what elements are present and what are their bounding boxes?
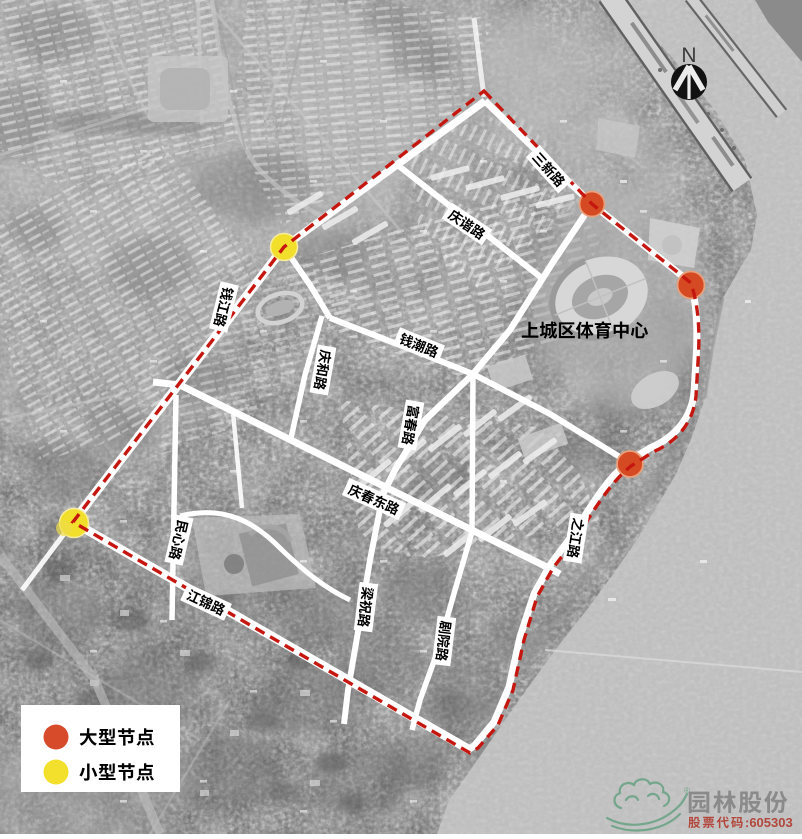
svg-text:N: N [681,44,696,67]
svg-text::605303: :605303 [745,815,793,830]
